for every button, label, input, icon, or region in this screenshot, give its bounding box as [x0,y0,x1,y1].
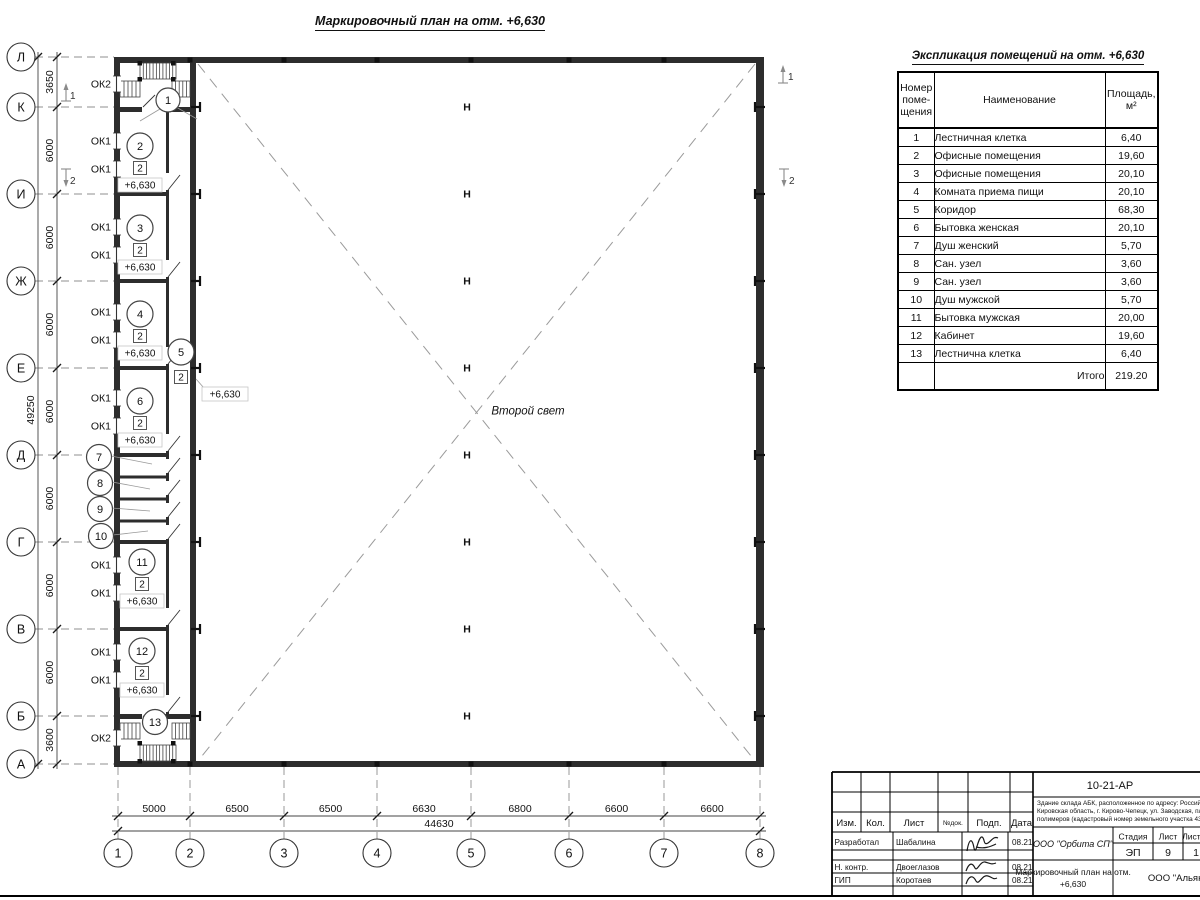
room-number-cell: 3 [898,165,934,183]
empty-cell [898,363,934,391]
column-square [469,58,474,63]
room-number: 1 [165,95,171,107]
table-row: 2Офисные помещения19,60 [898,147,1158,165]
title-block: 10-21-АР Здание склада АБК, расположенно… [0,772,1200,897]
dim-label: 6000 [44,661,56,685]
drawing-sheet: Маркировочный план на отм. +6,630 Экспли… [0,0,1200,900]
column-square [188,58,193,63]
stair-flight [140,63,176,79]
room-name-cell: Бытовка мужская [934,309,1105,327]
room-number-cell: 4 [898,183,934,201]
section-number: 1 [788,72,794,83]
room-number: 13 [149,717,161,729]
axis-label: 7 [661,847,668,861]
axis-label: Г [18,536,25,550]
elevation-label: +6,630 [127,597,158,608]
total-label: Итого [934,363,1105,391]
room-marks: 1 2 2 +6,630 3 2 +6,630 4 2 +6,630 5 2 [87,88,571,735]
column-mark: Н [463,363,471,375]
stair-flight [120,723,140,739]
stairwell-wall [114,107,142,112]
section-number: 2 [70,176,76,187]
stage-label: Стадия [1119,832,1148,842]
sheet-value: 9 [1165,847,1171,859]
door-opening [166,459,170,473]
stair-flight [140,745,176,761]
column-mark: Н [463,450,471,462]
room-number: 8 [97,478,103,490]
door-leaf [168,697,180,712]
stair-flight [172,723,190,739]
col-header-name: Наименование [934,72,1105,128]
axis-label: Б [17,710,25,724]
elevation-label: +6,630 [125,349,156,360]
stair-post [138,61,143,66]
company-name: ООО "Альянс [1148,873,1200,884]
axis-label: А [17,758,26,772]
door-opening [166,434,170,451]
type-mark: 2 [137,419,143,430]
section-marks: 1 2 1 2 [61,65,795,187]
room-number: 3 [137,223,143,235]
room-area-cell: 19,60 [1105,147,1158,165]
room-name-cell: Офисные помещения [934,165,1105,183]
column-mark: Н [463,102,471,114]
elevation-label: +6,630 [125,436,156,447]
door-leaf [168,524,180,539]
column-mark: Н [463,276,471,288]
project-description-line: полимеров (кадастровый номер земельного … [1037,815,1200,823]
dim-label: 6000 [44,400,56,424]
room-name-cell: Офисные помещения [934,147,1105,165]
column-square [282,58,287,63]
dim-label: 6500 [225,803,249,815]
stair-post [171,759,176,764]
signature [966,876,997,884]
explication-title: Экспликация помещений на отм. +6,630 [897,50,1159,62]
signature [967,837,998,851]
drawing-title-line: +6,630 [1060,879,1087,889]
col-data: Дата [1011,818,1033,829]
room-number-cell: 5 [898,201,934,219]
partition-wall [114,540,169,544]
window-label: ОК1 [91,307,111,319]
axis-label: В [17,623,25,637]
dim-label: 3650 [44,70,56,94]
table-row: 1Лестничная клетка6,40 [898,128,1158,147]
door-leaf [168,502,180,517]
dim-total-label: 49250 [25,395,37,424]
door-leaf [168,436,180,451]
room-area-cell: 20,10 [1105,219,1158,237]
stair-post [171,61,176,66]
project-description-line: Здание склада АБК, расположенное по адре… [1037,799,1200,807]
door-opening [166,608,170,625]
room-number-cell: 1 [898,128,934,147]
room-number-cell: 6 [898,219,934,237]
window-label: ОК1 [91,393,111,405]
axis-label: Д [17,449,26,463]
elevation-label: +6,630 [125,263,156,274]
person-role: ГИП [835,876,851,885]
column-mark: Н [463,537,471,549]
person-name: Шабалина [896,838,936,847]
window-label: ОК1 [91,250,111,262]
dim-label: 6000 [44,139,56,163]
door-opening [166,695,170,712]
section-number: 2 [789,176,795,187]
stair-post [138,759,143,764]
column-square [375,58,380,63]
wall-corridor [190,57,196,767]
window-label: ОК1 [91,675,111,687]
person-name: Двоеглазов [896,863,940,872]
axis-label: 6 [566,847,573,861]
door-opening [166,260,170,277]
type-mark: 2 [139,580,145,591]
col-list: Лист [904,818,925,829]
section-number: 1 [70,91,76,102]
person-role: Разработал [835,838,880,847]
axis-label: И [17,188,26,202]
plan-title-text: Маркировочный план на отм. +6,630 [315,14,545,31]
axis-label: 4 [374,847,381,861]
table-row: 7Душ женский5,70 [898,237,1158,255]
door-opening [166,503,170,517]
room-number-cell: 7 [898,237,934,255]
room-name-cell: Комната приема пищи [934,183,1105,201]
room-number: 7 [96,452,102,464]
dim-label: 6800 [508,803,532,815]
table-header-row: Номер поме- щения Наименование Площадь, … [898,72,1158,128]
table-row: 8Сан. узел3,60 [898,255,1158,273]
col-podp: Подп. [976,818,1001,829]
sheet-label: Лист [1159,832,1178,842]
sheets-label: Листов [1182,832,1200,842]
room-number-cell: 9 [898,273,934,291]
room-area-cell: 3,60 [1105,273,1158,291]
partition-wall [114,476,166,479]
column-square [662,762,667,767]
dim-label: 6000 [44,574,56,598]
door-leaf [168,610,180,625]
room-name-cell: Душ мужской [934,291,1105,309]
stair-post [171,77,176,82]
room-area-cell: 5,70 [1105,237,1158,255]
column-square [188,762,193,767]
explication-table: Номер поме- щения Наименование Площадь, … [897,71,1159,391]
room-area-cell: 20,00 [1105,309,1158,327]
column-square [567,762,572,767]
col-header-number: Номер поме- щения [898,72,934,128]
door-leaf [143,95,155,107]
column-square [375,762,380,767]
window-label: ОК2 [91,733,111,745]
partition-wall [114,192,169,196]
column-mark: Н [463,624,471,636]
door-leaf [168,480,180,495]
table-row: 11Бытовка мужская20,00 [898,309,1158,327]
dim-label: 5000 [142,803,166,815]
window-label: ОК1 [91,560,111,572]
type-mark: 2 [137,164,143,175]
room-area-cell: 6,40 [1105,128,1158,147]
col-ndok: №док. [943,820,963,827]
window-label: ОК1 [91,222,111,234]
table-row: 12Кабинет19,60 [898,327,1158,345]
column-square [469,762,474,767]
window-label: ОК1 [91,588,111,600]
room-number-cell: 11 [898,309,934,327]
door-leaf [168,458,180,473]
dim-label: 6000 [44,313,56,337]
axis-label: 5 [468,847,475,861]
room-number: 9 [97,504,103,516]
person-role: Н. контр. [835,863,869,872]
room-number-cell: 10 [898,291,934,309]
table-row: 4Комната приема пищи20,10 [898,183,1158,201]
room-area-cell: 19,60 [1105,327,1158,345]
axis-label: 1 [115,847,122,861]
axis-label: Е [17,362,25,376]
table-row: 3Офисные помещения20,10 [898,165,1158,183]
partition-wall [114,279,169,283]
section-arrow [64,180,69,187]
table-row: 10Душ мужской5,70 [898,291,1158,309]
person-name: Коротаев [896,876,931,885]
stairwell-wall [114,714,142,719]
dim-label: 6000 [44,487,56,511]
window-label: ОК2 [91,79,111,91]
stair-post [138,77,143,82]
room-area-cell: 5,70 [1105,291,1158,309]
room-number-cell: 8 [898,255,934,273]
door-leaf [168,262,180,277]
dim-label: 6600 [700,803,724,815]
type-mark: 2 [137,246,143,257]
window-label: ОК1 [91,335,111,347]
elevation-label: +6,630 [125,181,156,192]
walls [114,57,764,767]
room-number: 11 [136,557,147,569]
room-number-cell: 2 [898,147,934,165]
table-row: 5Коридор68,30 [898,201,1158,219]
wall-right [756,57,764,767]
room-number: 4 [137,309,143,321]
sheets-value: 1 [1193,847,1199,859]
column-square [282,762,287,767]
partition-wall [114,520,166,523]
dim-label: 6500 [319,803,343,815]
hall-diagonals [198,64,755,761]
elevation-label: +6,630 [127,686,158,697]
room-name-cell: Душ женский [934,237,1105,255]
room-name-cell: Сан. узел [934,273,1105,291]
partition-wall [114,453,169,457]
door-opening [166,525,170,539]
door-opening [166,481,170,495]
room-area-cell: 6,40 [1105,345,1158,363]
generated-layer: 3650600060006000600060006000600036004925… [7,43,774,867]
window-label: ОК1 [91,164,111,176]
stair-post [171,741,176,746]
room-number: 12 [136,646,148,658]
axis-label: Ж [15,275,27,289]
col-kol: Кол. [866,818,885,829]
col-header-area: Площадь, м² [1105,72,1158,128]
axis-label: 8 [757,847,764,861]
partition-wall [114,498,166,501]
room-number: 5 [178,347,184,359]
room-number-cell: 12 [898,327,934,345]
room-name-cell: Бытовка женская [934,219,1105,237]
type-mark: 2 [178,373,184,384]
table-total-row: Итого219.20 [898,363,1158,391]
stage-value: ЭП [1125,847,1140,859]
column-square [662,58,667,63]
axis-label: 2 [187,847,194,861]
dim-total-label: 44630 [424,818,453,830]
axis-label: К [17,101,25,115]
dim-label: 6600 [605,803,629,815]
table-row: 9Сан. узел3,60 [898,273,1158,291]
explication: Экспликация помещений на отм. +6,630 Ном… [897,50,1159,391]
axis-label: 3 [281,847,288,861]
column-mark: Н [463,711,471,723]
room-number-cell: 13 [898,345,934,363]
type-mark: 2 [137,332,143,343]
dim-label: 6000 [44,226,56,250]
room-name-cell: Коридор [934,201,1105,219]
room-name-cell: Сан. узел [934,255,1105,273]
column-mark: Н [463,189,471,201]
dim-label: 3600 [44,728,56,752]
person-date: 08.21 [1012,838,1033,847]
room-number: 10 [95,531,107,543]
project-description-line: Кировская область, г. Кирово-Чепецк, ул.… [1037,807,1200,815]
section-arrow [782,180,787,187]
col-izm: Изм. [836,818,856,829]
partition-wall [114,627,169,631]
room-area-cell: 68,30 [1105,201,1158,219]
signature [966,862,996,871]
second-light-label: Второй свет [491,406,565,418]
room-name-cell: Кабинет [934,327,1105,345]
door-leaf [168,175,180,190]
axis-label: Л [17,51,25,65]
room-number: 2 [137,141,143,153]
partition-wall [114,366,169,370]
room-number: 6 [137,396,143,408]
room-area-cell: 3,60 [1105,255,1158,273]
door-opening [166,173,170,190]
room-name-cell: Лестнична клетка [934,345,1105,363]
table-row: 6Бытовка женская20,10 [898,219,1158,237]
room-name-cell: Лестничная клетка [934,128,1105,147]
table-row: 13Лестнична клетка6,40 [898,345,1158,363]
section-arrow [781,65,786,72]
person-date: 08.21 [1012,876,1033,885]
hall-elevation-label: +6,630 [210,390,241,401]
doc-number: 10-21-АР [1087,780,1133,792]
room-area-cell: 20,10 [1105,165,1158,183]
total-value: 219.20 [1105,363,1158,391]
stair-post [138,741,143,746]
stair-flight [120,81,140,97]
dim-label: 6630 [412,803,436,815]
window-label: ОК1 [91,421,111,433]
org-name: ООО "Орбита СП" [1033,839,1114,849]
window-label: ОК1 [91,647,111,659]
section-arrow [64,83,69,90]
window-label: ОК1 [91,136,111,148]
column-square [567,58,572,63]
room-area-cell: 20,10 [1105,183,1158,201]
plan-title: Маркировочный план на отм. +6,630 [290,12,570,30]
type-mark: 2 [139,669,145,680]
